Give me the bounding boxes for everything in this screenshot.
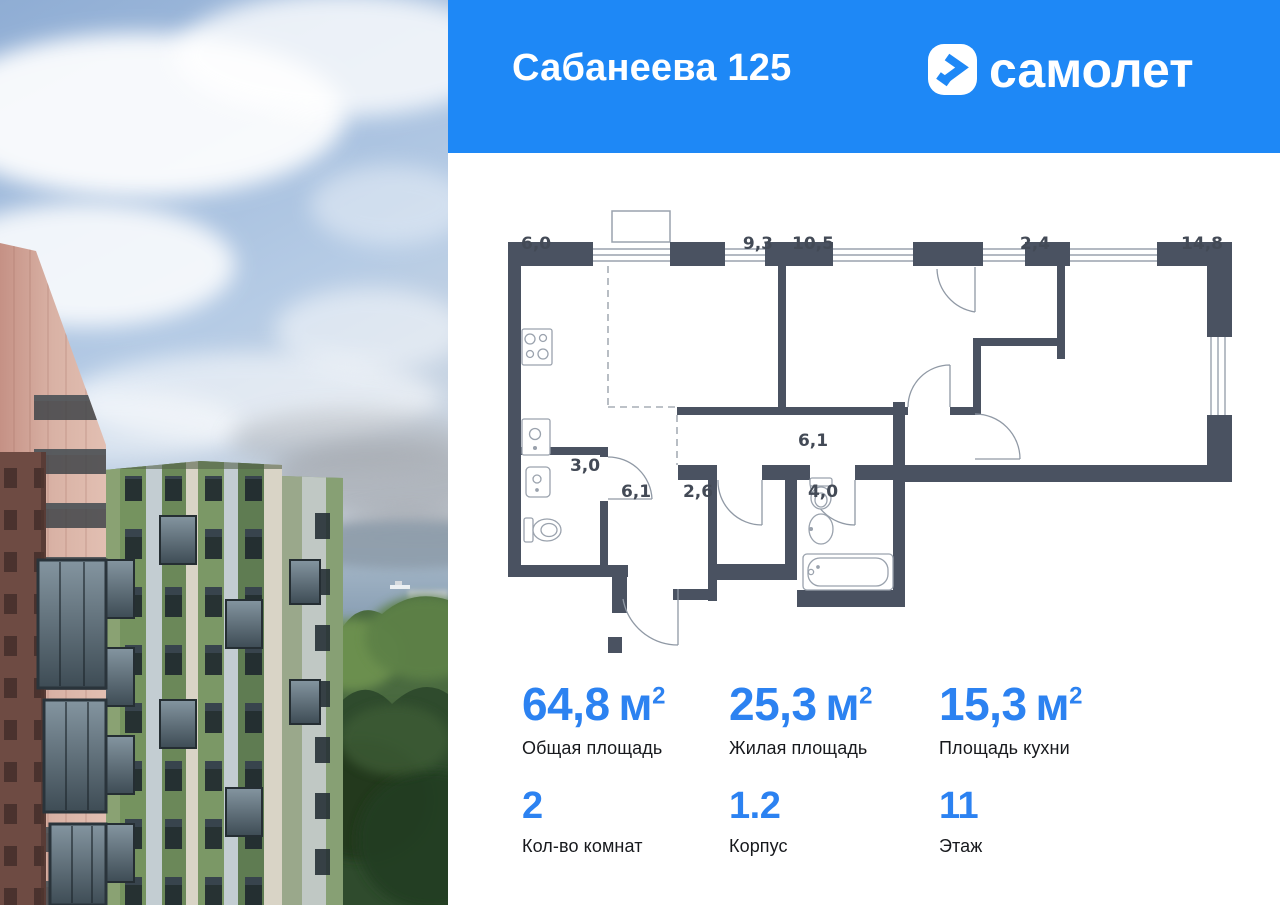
stat-label: Этаж: [939, 836, 982, 857]
room-area-label: 9,3: [743, 234, 773, 254]
kitchen-sink-icon: [522, 419, 550, 455]
plan-windows: [508, 249, 1232, 415]
bathroom-sink-icon: [526, 467, 550, 497]
room-area-label: 2,6: [683, 482, 713, 502]
plan-walls: [508, 242, 1232, 653]
samolet-arrow-icon: [928, 44, 977, 95]
toilet-icon: [524, 518, 561, 542]
stat-living-area: 25,3м2 Жилая площадь: [729, 681, 872, 759]
stat-label: Жилая площадь: [729, 738, 872, 759]
room-area-label: 2,4: [1020, 234, 1050, 254]
stat-rooms: 2 Кол-во комнат: [522, 787, 643, 857]
room-area-label: 14,8: [1181, 234, 1223, 254]
room-area-label: 6,1: [621, 482, 651, 502]
stat-floor: 11 Этаж: [939, 787, 982, 857]
room-area-label: 3,0: [570, 456, 600, 476]
balcony: [612, 211, 670, 242]
floor-plan: 6,0 9,3 10,5 2,4 14,8 3,0 6,1 2,6 4,0 6,…: [505, 207, 1235, 687]
room-area-label: 10,5: [792, 234, 834, 254]
room-area-label: 6,1: [798, 431, 828, 451]
bathtub-icon: [803, 554, 893, 590]
room-area-label: 6,0: [521, 234, 551, 254]
page-title: Сабанеева 125: [512, 47, 791, 90]
stat-label: Корпус: [729, 836, 788, 857]
header-bar: Сабанеева 125 самолет: [448, 0, 1280, 153]
room-area-label: 4,0: [808, 482, 838, 502]
zone-dashes: [608, 266, 677, 465]
stove-icon: [522, 329, 552, 365]
stat-building: 1.2 Корпус: [729, 787, 788, 857]
brand-name: самолет: [989, 45, 1194, 95]
sink2-icon: [809, 514, 833, 544]
stat-label: Площадь кухни: [939, 738, 1082, 759]
listing-card: Сабанеева 125 самолет: [0, 0, 1280, 905]
stat-kitchen-area: 15,3м2 Площадь кухни: [939, 681, 1082, 759]
green-building: [104, 458, 343, 905]
stat-label: Кол-во комнат: [522, 836, 643, 857]
stat-label: Общая площадь: [522, 738, 665, 759]
stat-total-area: 64,8м2 Общая площадь: [522, 681, 665, 759]
brand-logo: самолет: [928, 44, 1194, 95]
building-photo: [0, 0, 448, 905]
